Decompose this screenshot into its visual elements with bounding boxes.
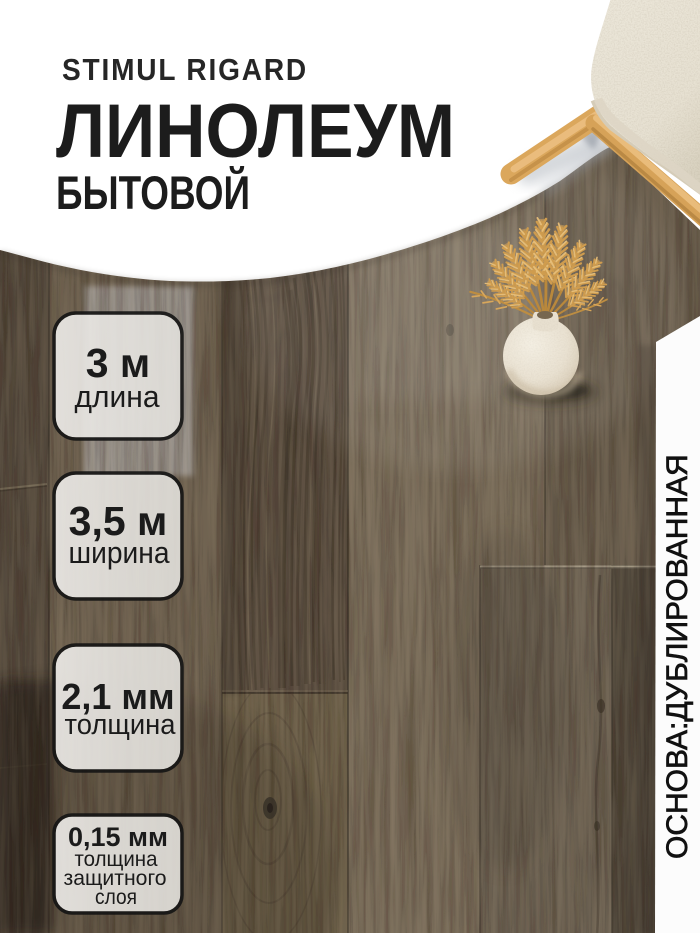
svg-text:слоя: слоя	[95, 886, 137, 909]
svg-text:ЛИНОЛЕУМ: ЛИНОЛЕУМ	[56, 89, 455, 174]
svg-text:БЫТОВОЙ: БЫТОВОЙ	[56, 166, 250, 219]
svg-text:толщина: толщина	[65, 709, 177, 741]
svg-text:STIMUL RIGARD: STIMUL RIGARD	[62, 52, 308, 87]
svg-text:длина: длина	[75, 379, 161, 414]
svg-text:ОСНОВА:ДУБЛИРОВАННАЯ: ОСНОВА:ДУБЛИРОВАННАЯ	[661, 454, 694, 859]
svg-text:ширина: ширина	[69, 535, 171, 570]
